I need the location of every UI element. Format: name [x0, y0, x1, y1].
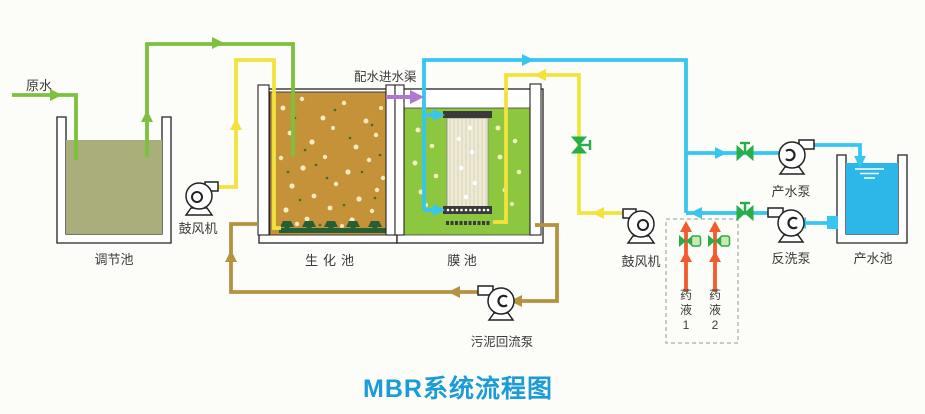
blower-right-label: 鼓风机: [621, 251, 660, 270]
bio-tank: [259, 89, 397, 243]
actuated-valve-icon: [679, 235, 701, 247]
chemical-1-label: 药液1: [678, 288, 694, 333]
membrane-tank: [397, 89, 543, 243]
chemical-2-label: 药液2: [707, 288, 723, 333]
inlet-channel-label: 配水进水渠: [354, 66, 417, 85]
blower-left-label: 鼓风机: [178, 218, 217, 237]
membrane-tank-label: 膜 池: [447, 250, 477, 269]
valve-icon: [737, 203, 753, 220]
mbr-flow-diagram: 原水 调节池 鼓风机 生化池 配水进水渠 膜 池 鼓风机 产水泵 反洗泵 产水池…: [0, 0, 925, 414]
diagram-canvas: [0, 0, 925, 414]
pump-icon: [768, 208, 804, 242]
sludge-pump-label: 污泥回流泵: [471, 331, 534, 350]
arrow-icon: [225, 250, 522, 307]
chemical-feed-lines: [680, 221, 721, 292]
tank-outlet-fitting: [827, 216, 838, 229]
valve-icon: [572, 137, 590, 153]
blower-icon: [186, 182, 218, 215]
raw-water-label: 原水: [26, 75, 52, 94]
diagram-title: MBR系统流程图: [363, 369, 553, 405]
product-tank: [837, 155, 907, 243]
product-tank-label: 产水池: [853, 248, 892, 267]
membrane-module-icon: [443, 111, 492, 225]
blower-icon: [623, 209, 654, 243]
bio-tank-label: 生化池: [305, 250, 359, 269]
regulation-tank-label: 调节池: [94, 249, 133, 268]
pump-icon: [478, 286, 514, 320]
product-pump-label: 产水泵: [771, 181, 810, 200]
valve-icon: [737, 143, 753, 160]
actuated-valve-icon: [708, 235, 730, 247]
pump-icon: [779, 140, 814, 174]
backwash-pump-label: 反洗泵: [771, 248, 810, 267]
